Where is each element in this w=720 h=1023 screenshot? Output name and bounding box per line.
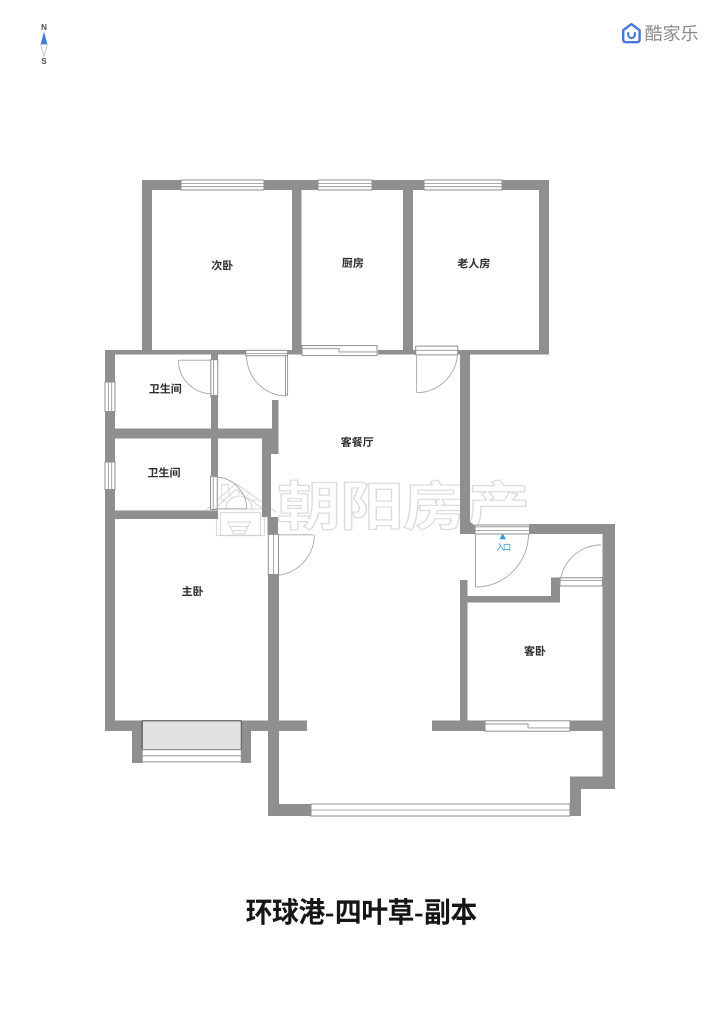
svg-text:N: N xyxy=(41,23,47,32)
svg-text:S: S xyxy=(41,57,47,66)
